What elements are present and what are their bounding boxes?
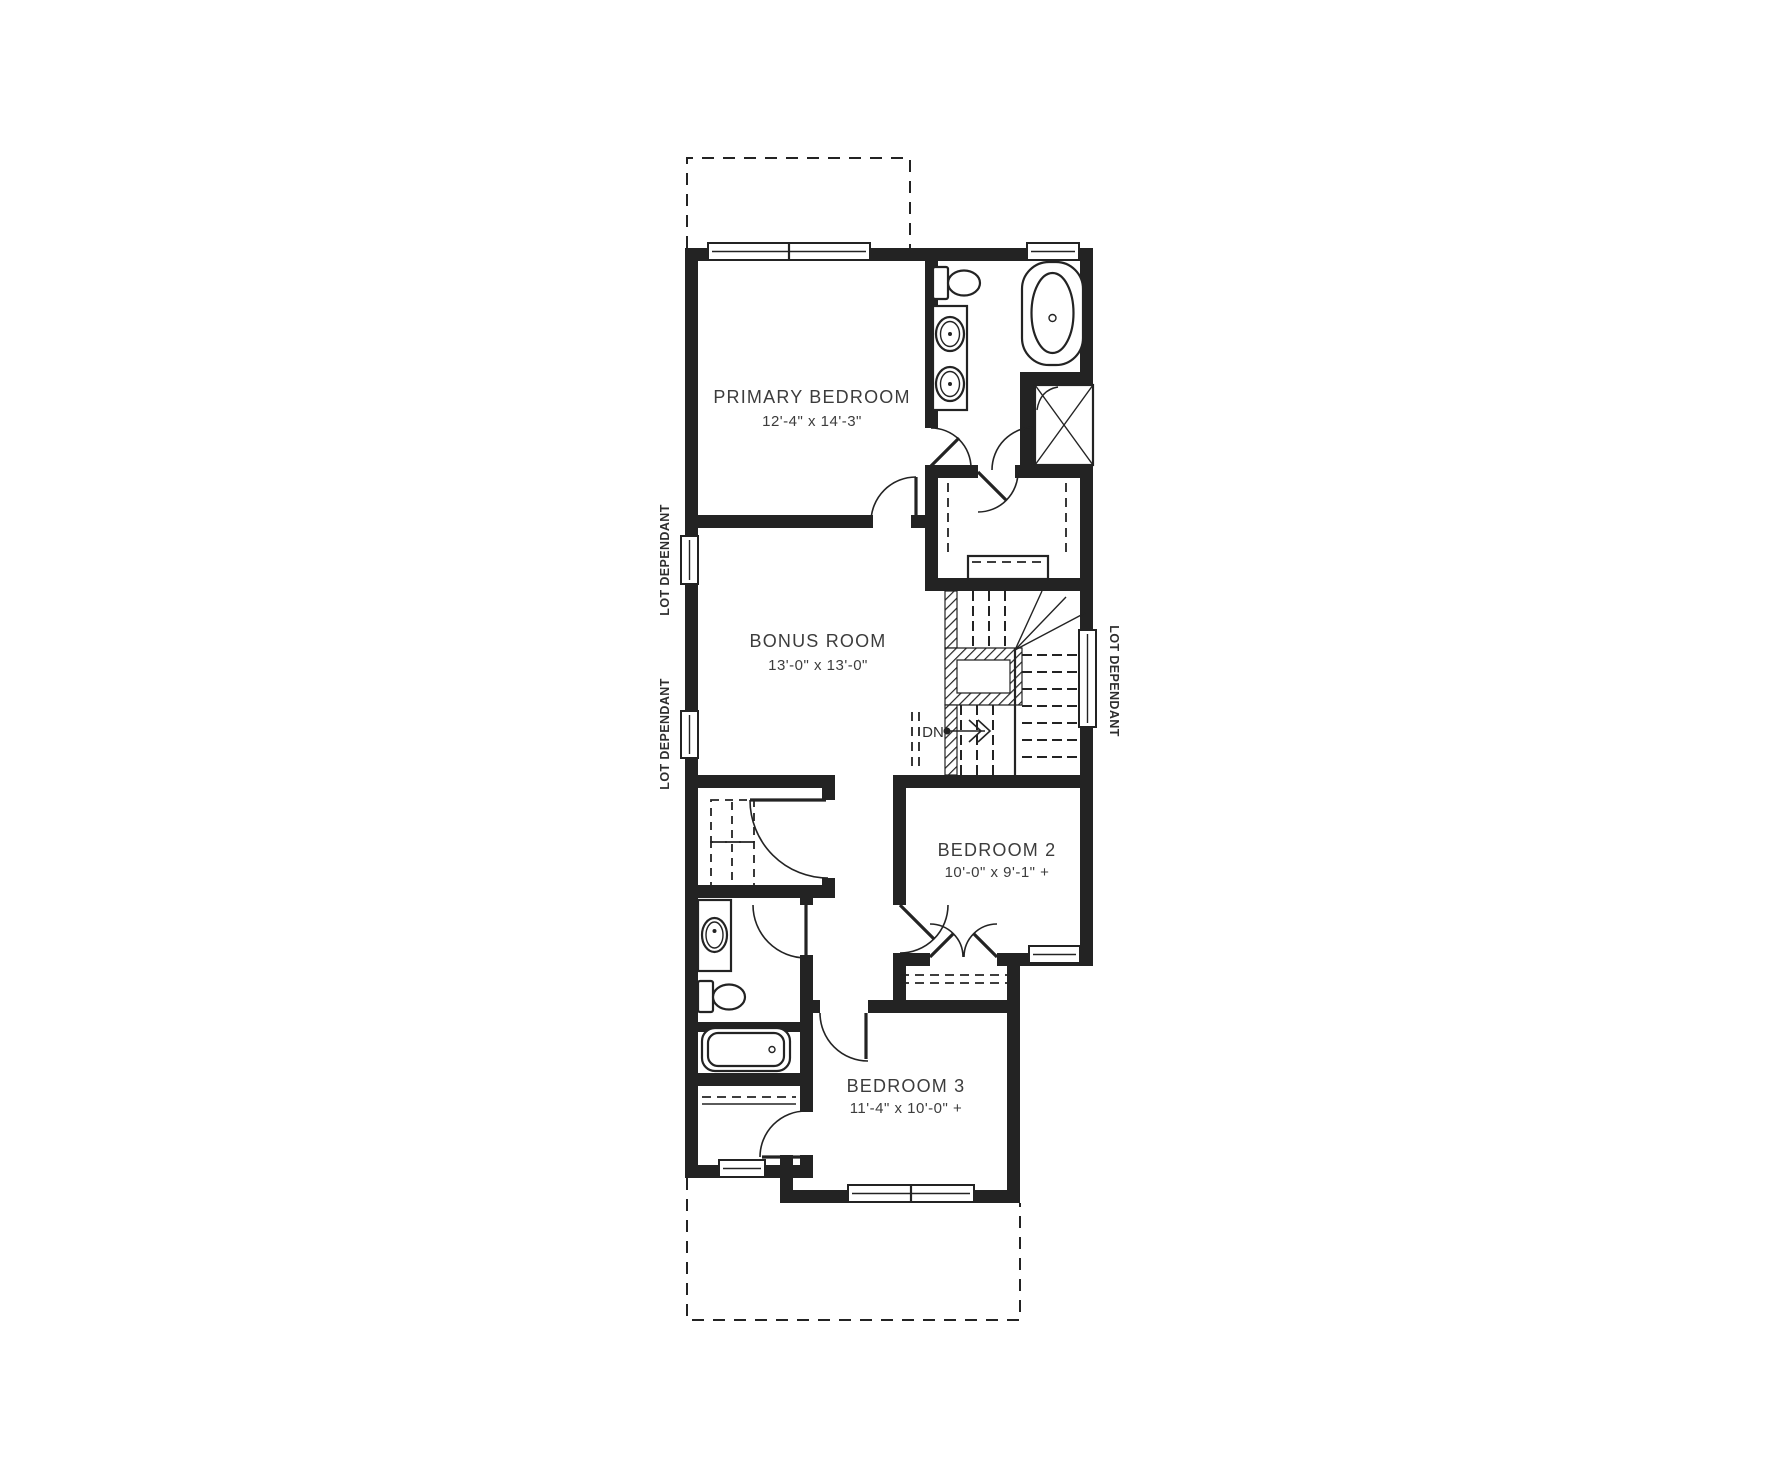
room-label-bedroom2: BEDROOM 2	[938, 840, 1057, 860]
shower	[1035, 385, 1093, 465]
room-dims-bonus-room: 13'-0" x 13'-0"	[768, 657, 868, 674]
stair-hatched-wall	[945, 591, 957, 648]
wall	[698, 1073, 800, 1086]
window-left-upper	[681, 536, 698, 584]
wall	[1020, 372, 1093, 385]
door-ensuite	[931, 428, 971, 468]
walk-in-closet-rods	[948, 483, 1066, 579]
doors	[750, 427, 1035, 1157]
wall	[698, 885, 835, 898]
staircase	[912, 591, 1085, 775]
room-dims-bedroom3: 11'-4" x 10'-0" +	[850, 1100, 963, 1117]
wall	[698, 515, 873, 528]
floor-plan-page: PRIMARY BEDROOM 12'-4" x 14'-3" BONUS RO…	[0, 0, 1780, 1480]
lot-outline-top	[687, 158, 910, 248]
door-primary-bedroom	[871, 477, 916, 522]
wall	[893, 788, 906, 905]
door-bedroom3-closet	[760, 1111, 806, 1157]
vanity-main-bath	[698, 900, 731, 971]
freestanding-tub	[1022, 262, 1083, 365]
door-laundry	[750, 800, 828, 878]
stair-winder	[1015, 597, 1066, 650]
wall	[1007, 953, 1020, 1203]
room-label-bedroom3: BEDROOM 3	[847, 1076, 966, 1096]
door-bedroom3	[820, 1013, 868, 1061]
window-bedroom2-bottom	[1029, 946, 1080, 963]
wall	[698, 775, 835, 788]
toilet-ensuite	[933, 267, 980, 299]
stair-winder	[1015, 591, 1042, 650]
washer-dryer	[711, 800, 754, 886]
wall	[1080, 261, 1093, 966]
stair-winder	[1015, 613, 1085, 650]
lot-dependant-outlines	[687, 158, 1020, 1320]
wall	[800, 898, 813, 905]
room-label-bonus-room: BONUS ROOM	[749, 631, 886, 651]
window-closet-bottom	[719, 1160, 765, 1177]
wall	[780, 1155, 793, 1203]
door-walk-in-closet	[978, 472, 1018, 512]
bathtub-main-bath	[702, 1028, 790, 1071]
double-vanity-ensuite	[933, 306, 967, 410]
bedroom2-closet-rod	[900, 975, 1007, 983]
toilet-main-bath	[698, 981, 745, 1012]
stair-open-well	[945, 648, 1022, 705]
wall	[893, 775, 1093, 788]
wall	[893, 953, 930, 966]
room-label-primary-bedroom: PRIMARY BEDROOM	[713, 387, 910, 407]
room-dims-bedroom2: 10'-0" x 9'-1" +	[945, 864, 1050, 881]
floor-plan-canvas: PRIMARY BEDROOM 12'-4" x 14'-3" BONUS RO…	[0, 0, 1780, 1480]
wall	[868, 1000, 1020, 1013]
lot-dependant-label-left-lower: LOT DEPENDANT	[658, 678, 672, 789]
window-left-lower	[681, 711, 698, 758]
wall	[800, 955, 813, 1112]
wall	[822, 775, 835, 800]
lot-dependant-label-right: LOT DEPENDANT	[1107, 625, 1121, 736]
stair-dn-label: DN	[922, 724, 944, 741]
bedroom3-closet-shelf	[702, 1097, 796, 1104]
window-right-stair	[1079, 630, 1096, 727]
window-ensuite-top	[1027, 243, 1079, 260]
stair-hatched-wall	[945, 705, 957, 775]
window-bedroom3-bottom	[848, 1185, 974, 1202]
wall	[925, 465, 978, 478]
room-dims-primary-bedroom: 12'-4" x 14'-3"	[762, 413, 862, 430]
window-primary-top	[708, 243, 870, 260]
door-bathroom	[753, 905, 806, 958]
lot-dependant-label-left-upper: LOT DEPENDANT	[658, 504, 672, 615]
wall	[800, 1000, 820, 1013]
door-bedroom2-closet-double	[930, 924, 997, 957]
